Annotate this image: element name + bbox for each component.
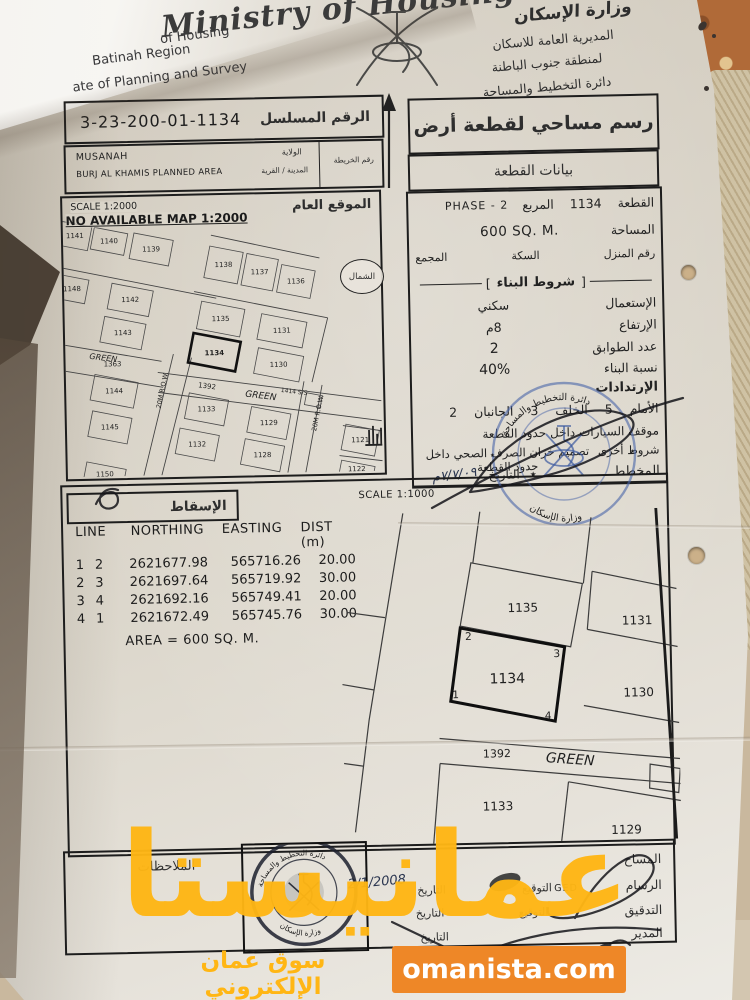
hole-punch	[688, 547, 705, 564]
watermark-tagline: سوق عمان الإلكتروني	[140, 948, 386, 1000]
watermark-site-box: omanista.com	[392, 946, 626, 993]
watermark-main: عمانيستا	[138, 790, 630, 960]
ink-speck	[704, 86, 709, 91]
hole-punch	[681, 265, 696, 280]
ink-speck	[712, 34, 716, 38]
projection-scribble	[96, 489, 118, 509]
photo-of-document: Ministry of Housing of Housing Batinah R…	[0, 0, 750, 1000]
watermark-site-url: omanista.com	[402, 954, 616, 985]
